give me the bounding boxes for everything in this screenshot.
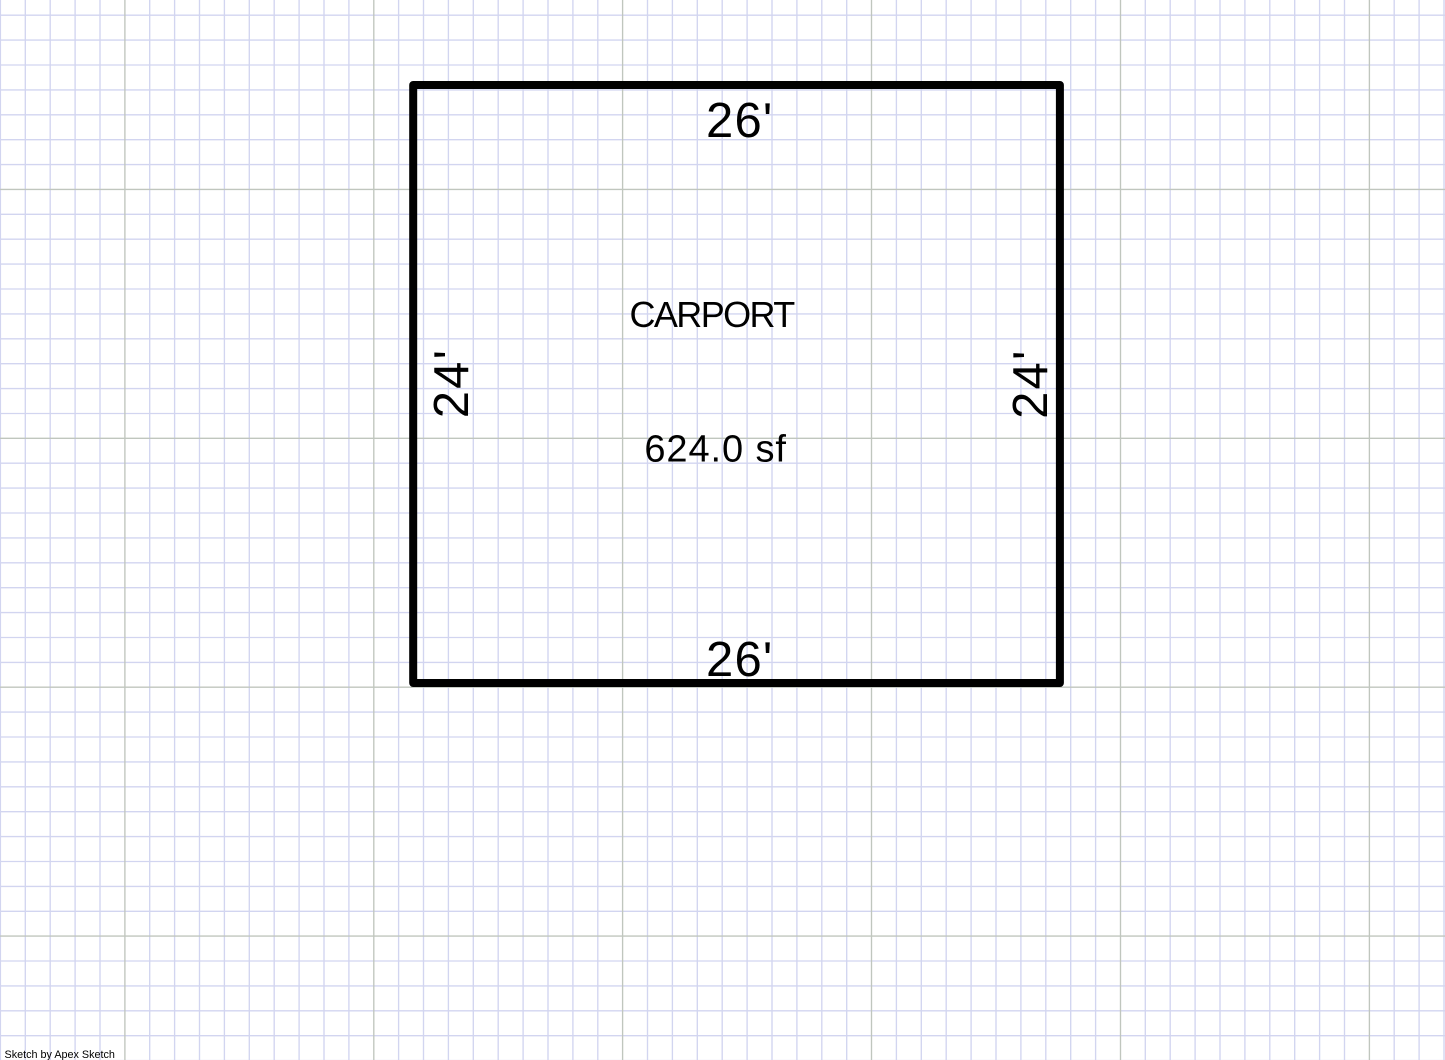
svg-text:CARPORT: CARPORT	[630, 294, 796, 335]
svg-text:26': 26'	[706, 633, 773, 687]
svg-text:26': 26'	[706, 94, 773, 148]
svg-text:24': 24'	[425, 348, 479, 418]
svg-text:Sketch by Apex Sketch: Sketch by Apex Sketch	[5, 1049, 115, 1060]
svg-text:24': 24'	[1004, 348, 1058, 418]
svg-text:624.0 sf: 624.0 sf	[644, 428, 786, 470]
